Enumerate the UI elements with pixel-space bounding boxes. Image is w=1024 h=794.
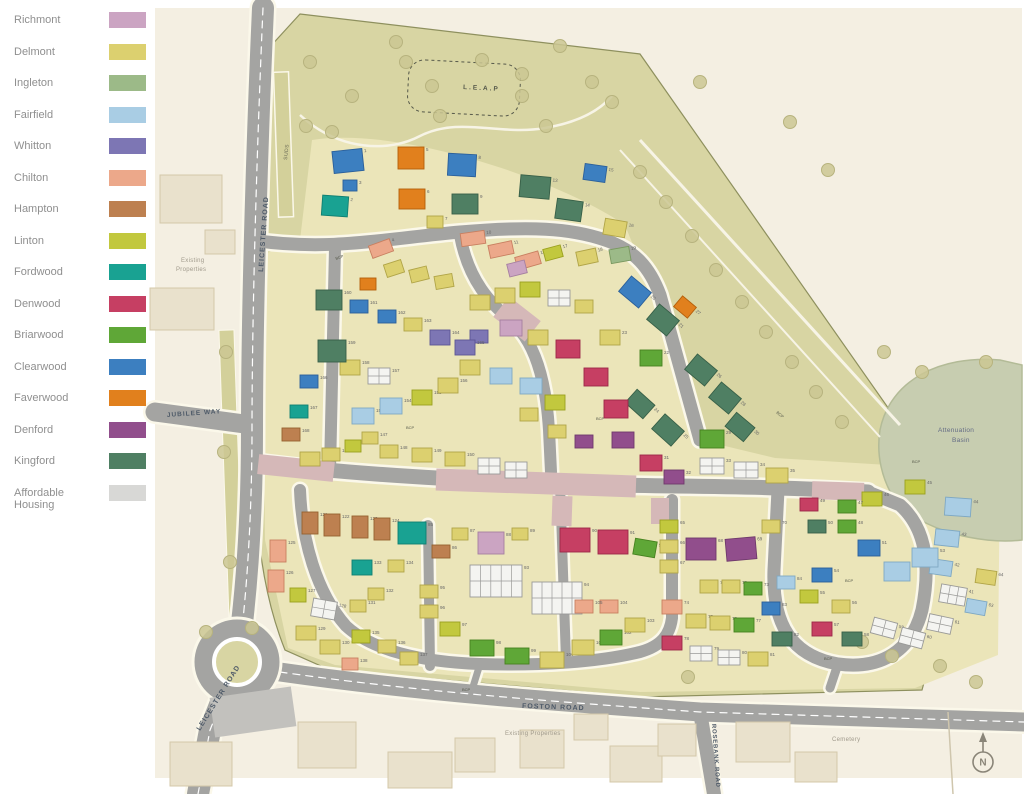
house-plot — [360, 278, 376, 290]
legend-item-ingleton: Ingleton — [14, 75, 146, 92]
legend-item-whitton: Whitton — [14, 138, 146, 155]
plot-number: 125 — [288, 540, 296, 545]
plot-number: 86 — [452, 545, 458, 550]
plot-number: 124 — [392, 518, 400, 523]
plot-number: 157 — [392, 368, 400, 373]
house-plot — [575, 300, 593, 313]
tree-icon — [736, 296, 749, 309]
plot-number: 32 — [686, 470, 692, 475]
house-plot — [575, 435, 593, 448]
plot-number: 73 — [764, 582, 770, 587]
plot-number: 13 — [552, 178, 558, 183]
plot-number: 34 — [760, 462, 766, 467]
legend-color-swatch — [109, 264, 146, 280]
plot-number: 158 — [362, 360, 370, 365]
plot-number: 105 — [595, 600, 603, 605]
legend-item-denford: Denford — [14, 422, 146, 439]
tree-icon — [224, 556, 237, 569]
plot-number: 166 — [320, 375, 328, 380]
house-plot — [478, 458, 500, 474]
house-plot — [495, 288, 515, 303]
house-plot — [520, 378, 542, 394]
plot-number: 74 — [684, 600, 690, 605]
legend-label: Chilton — [14, 170, 48, 184]
plot-number: 136 — [398, 640, 406, 645]
legend-label: Linton — [14, 233, 44, 247]
plot-number: 156 — [460, 378, 468, 383]
legend-label: Ingleton — [14, 75, 53, 89]
tree-icon — [540, 120, 553, 133]
plot-number: 83 — [782, 602, 788, 607]
legend-label: Richmont — [14, 12, 60, 26]
plot-number: 54 — [834, 568, 840, 573]
map-label: BCP — [462, 687, 471, 692]
existing-building — [205, 230, 235, 254]
map-label: Basin — [952, 437, 970, 444]
legend-item-briarwood: Briarwood — [14, 327, 146, 344]
house-plot: 5 — [398, 147, 429, 169]
plot-number: 23 — [622, 330, 628, 335]
tree-icon — [606, 96, 619, 109]
house-plot: 6 — [399, 189, 430, 209]
plot-number: 154 — [404, 398, 412, 403]
plot-number: 97 — [462, 622, 468, 627]
tree-icon — [200, 626, 213, 639]
tree-icon — [218, 446, 231, 459]
plot-number: 44 — [973, 499, 979, 504]
plot-number: 22 — [664, 350, 670, 355]
plot-number: 50 — [828, 520, 834, 525]
masterplan-page: { "legend": { "items": [ {"label": "Rich… — [0, 0, 1024, 794]
plot-number: 88 — [506, 532, 512, 537]
plot-number: 93 — [524, 565, 530, 570]
plot-number: 160 — [344, 290, 352, 295]
tree-icon — [390, 36, 403, 49]
map-label: BCP — [406, 425, 415, 430]
legend-label: Affordable Housing — [14, 485, 64, 511]
plot-number: 91 — [630, 530, 636, 535]
legend-label: Delmont — [14, 44, 55, 58]
tree-icon — [586, 76, 599, 89]
house-plot — [528, 330, 548, 345]
legend-item-fairfield: Fairfield — [14, 107, 146, 124]
legend-color-swatch — [109, 233, 146, 249]
house-plot — [545, 395, 565, 410]
plot-number: 84 — [797, 576, 803, 581]
existing-building — [298, 722, 356, 768]
legend-color-swatch — [109, 107, 146, 123]
house-plot — [520, 282, 540, 297]
plot-number: 69 — [757, 536, 763, 541]
plot-number: 82 — [794, 632, 800, 637]
legend-item-affordable-housing: Affordable Housing — [14, 485, 146, 502]
map-label: BCP — [845, 578, 854, 583]
plot-number: 129 — [318, 626, 326, 631]
plot-number: 31 — [664, 455, 670, 460]
plot-number: 134 — [406, 560, 414, 565]
tree-icon — [300, 120, 313, 133]
tree-icon — [694, 76, 707, 89]
plot-number: 53 — [940, 548, 946, 553]
plot-number: 132 — [386, 588, 394, 593]
plot-number: 122 — [342, 514, 350, 519]
legend-label: Kingford — [14, 453, 55, 467]
legend-item-clearwood: Clearwood — [14, 359, 146, 376]
legend-color-swatch — [109, 44, 146, 60]
plot-number: 137 — [420, 652, 428, 657]
plot-number: 46 — [884, 492, 890, 497]
house-plot — [470, 295, 490, 310]
plot-number: 126 — [286, 570, 294, 575]
tree-icon — [434, 110, 447, 123]
legend-color-swatch — [109, 359, 146, 375]
tree-icon — [886, 650, 899, 663]
tree-icon — [710, 264, 723, 277]
plot-number: 33 — [726, 458, 732, 463]
plot-number: 167 — [310, 405, 318, 410]
tree-icon — [810, 386, 823, 399]
raised-junction — [551, 496, 572, 527]
map-label: Properties — [176, 267, 206, 273]
legend-item-delmont: Delmont — [14, 44, 146, 61]
plot-number: 130 — [342, 640, 350, 645]
map-label: Cemetery — [832, 737, 860, 743]
plot-number: 168 — [302, 428, 310, 433]
legend-color-swatch — [109, 327, 146, 343]
plot-number: 159 — [348, 340, 356, 345]
plot-number: 47 — [858, 500, 864, 505]
plot-number: 148 — [400, 445, 408, 450]
plot-number: 67 — [680, 560, 686, 565]
tree-icon — [878, 346, 891, 359]
plot-number: 164 — [452, 330, 460, 335]
plot-number: 65 — [680, 520, 686, 525]
legend-color-swatch — [109, 75, 146, 91]
legend-label: Clearwood — [14, 359, 67, 373]
plot-number: 98 — [496, 640, 502, 645]
plot-number: 150 — [467, 452, 475, 457]
tree-icon — [400, 56, 413, 69]
map-label: Existing — [181, 258, 204, 264]
map-label: BCP — [596, 416, 605, 421]
tree-icon — [682, 671, 695, 684]
existing-building — [150, 288, 214, 330]
plot-number: 80 — [742, 650, 748, 655]
legend-item-denwood: Denwood — [14, 296, 146, 313]
tree-icon — [516, 68, 529, 81]
legend-color-swatch — [109, 485, 146, 501]
plot-number: 127 — [308, 588, 316, 593]
tree-icon — [786, 356, 799, 369]
house-plot — [612, 432, 634, 448]
legend-item-chilton: Chilton — [14, 170, 146, 187]
house-plot — [548, 290, 570, 306]
legend-item-fordwood: Fordwood — [14, 264, 146, 281]
existing-building — [170, 742, 232, 786]
plot-number: 77 — [756, 618, 762, 623]
house-plot — [604, 400, 628, 418]
existing-building — [574, 714, 608, 740]
house-plot: 93 — [470, 565, 530, 597]
plot-number: 133 — [374, 560, 382, 565]
plot-number: 162 — [398, 310, 406, 315]
tree-icon — [304, 56, 317, 69]
plot-number: 57 — [834, 622, 840, 627]
plot-number: 56 — [852, 600, 858, 605]
legend-label: Briarwood — [14, 327, 64, 341]
legend-label: Fordwood — [14, 264, 63, 278]
tree-icon — [220, 346, 233, 359]
plot-number: 147 — [380, 432, 388, 437]
legend-color-swatch — [109, 12, 146, 28]
existing-building — [160, 175, 222, 223]
legend-item-hampton: Hampton — [14, 201, 146, 218]
map-label: BCP — [912, 459, 921, 464]
legend-color-swatch — [109, 138, 146, 154]
site-plan-map: 1234567891011121314151617181920212223242… — [0, 0, 1024, 794]
existing-building — [795, 752, 837, 782]
legend-color-swatch — [109, 296, 146, 312]
map-label: Attenuation — [938, 427, 974, 434]
tree-icon — [934, 660, 947, 673]
legend-label: Hampton — [14, 201, 59, 215]
legend-color-swatch — [109, 453, 146, 469]
house-plot — [520, 408, 538, 421]
tree-icon — [634, 166, 647, 179]
plot-number: 90 — [592, 528, 598, 533]
house-plot — [460, 360, 480, 375]
tree-icon — [784, 116, 797, 129]
house-plot — [556, 340, 580, 358]
plot-number: 99 — [531, 648, 537, 653]
plot-number: 48 — [858, 520, 864, 525]
house-type-legend: RichmontDelmontIngletonFairfieldWhittonC… — [14, 12, 146, 516]
legend-item-linton: Linton — [14, 233, 146, 250]
plot-number: 51 — [882, 540, 888, 545]
house-plot — [584, 368, 608, 386]
legend-label: Faverwood — [14, 390, 68, 404]
plot-number: 163 — [424, 318, 432, 323]
house-plot — [548, 425, 566, 438]
plot-number: 85 — [428, 522, 434, 527]
tree-icon — [326, 126, 339, 139]
plot-number: 89 — [530, 528, 536, 533]
plot-number: 95 — [440, 585, 446, 590]
plot-number: 68 — [718, 538, 724, 543]
tree-icon — [246, 622, 259, 635]
existing-building — [736, 722, 790, 762]
legend-label: Denwood — [14, 296, 60, 310]
legend-color-swatch — [109, 201, 146, 217]
map-label: Existing Properties — [505, 731, 561, 737]
tree-icon — [346, 90, 359, 103]
legend-label: Denford — [14, 422, 53, 436]
legend-color-swatch — [109, 422, 146, 438]
tree-icon — [686, 230, 699, 243]
existing-building — [610, 746, 662, 782]
legend-color-swatch — [109, 170, 146, 186]
plot-number: 103 — [647, 618, 655, 623]
house-plot — [434, 274, 454, 290]
plot-number: 165 — [477, 340, 485, 345]
legend-item-richmont: Richmont — [14, 12, 146, 29]
tree-icon — [516, 90, 529, 103]
tree-icon — [426, 80, 439, 93]
house-plot — [490, 368, 512, 384]
plot-number: 45 — [927, 480, 933, 485]
legend-label: Whitton — [14, 138, 51, 152]
existing-building — [455, 738, 495, 772]
plot-number: 104 — [620, 600, 628, 605]
plot-number: 161 — [370, 300, 378, 305]
tree-icon — [476, 54, 489, 67]
map-label: BCP — [824, 656, 833, 661]
tree-icon — [660, 196, 673, 209]
plot-number: 49 — [820, 498, 826, 503]
tree-icon — [916, 366, 929, 379]
plot-number: 87 — [470, 528, 476, 533]
plot-number: 131 — [368, 600, 376, 605]
plot-number: 58 — [864, 632, 870, 637]
plot-number: 96 — [440, 605, 446, 610]
plot-number: 81 — [770, 652, 776, 657]
tree-icon — [980, 356, 993, 369]
house-plot — [500, 320, 522, 336]
plot-number: 149 — [434, 448, 442, 453]
tree-icon — [970, 676, 983, 689]
tree-icon — [760, 326, 773, 339]
plot-number: 66 — [680, 540, 686, 545]
house-plot — [505, 462, 527, 478]
legend-item-faverwood: Faverwood — [14, 390, 146, 407]
plot-number: 135 — [372, 630, 380, 635]
plot-number: 138 — [360, 658, 368, 663]
legend-label: Fairfield — [14, 107, 53, 121]
tree-icon — [822, 164, 835, 177]
plot-number: 55 — [820, 590, 826, 595]
north-label: N — [979, 758, 986, 769]
existing-building — [658, 724, 696, 756]
existing-building — [388, 752, 452, 788]
plot-number: 70 — [782, 520, 788, 525]
plot-number: 78 — [684, 636, 690, 641]
tree-icon — [554, 40, 567, 53]
house-plot: 1 — [332, 148, 369, 174]
tree-icon — [836, 416, 849, 429]
plot-number: 35 — [790, 468, 796, 473]
legend-color-swatch — [109, 390, 146, 406]
house-plot: 9 — [452, 194, 483, 214]
plot-number: 94 — [584, 582, 590, 587]
legend-item-kingford: Kingford — [14, 453, 146, 470]
